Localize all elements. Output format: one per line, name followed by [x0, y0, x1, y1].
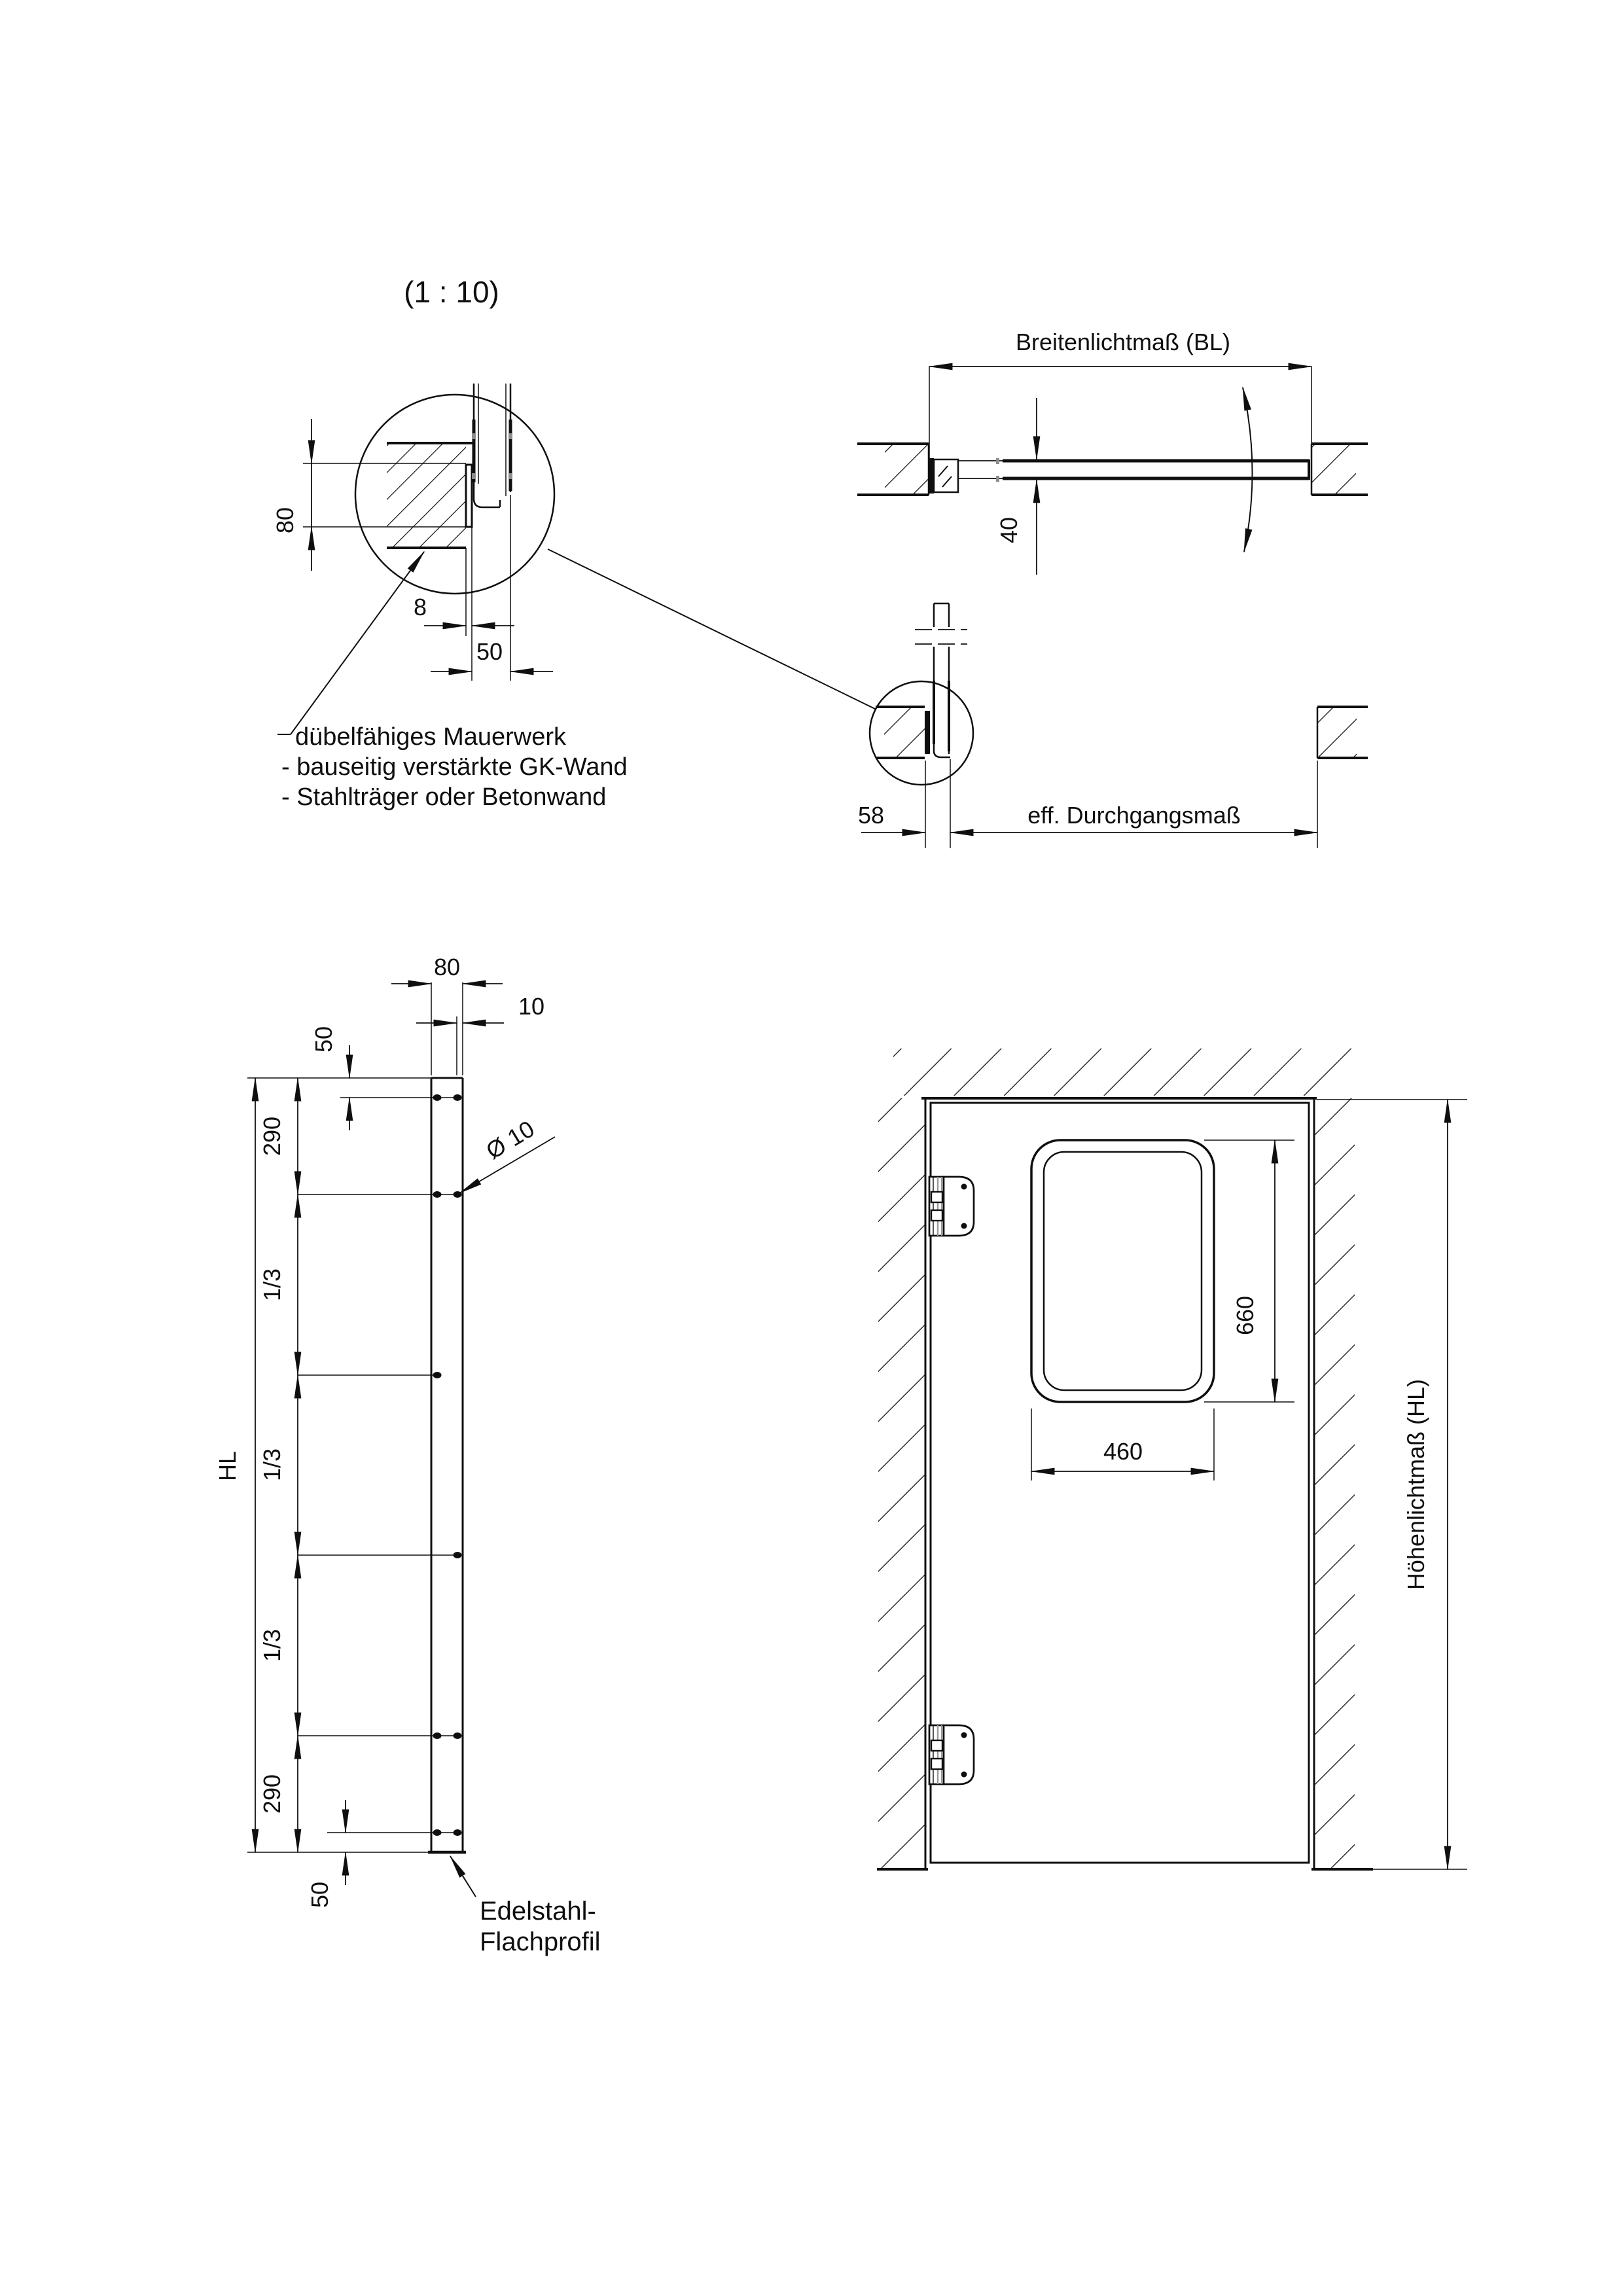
detail-view: 80 8 50 — [272, 384, 876, 734]
scale-label: (1 : 10) — [404, 275, 499, 309]
frame-plate-section — [925, 711, 930, 754]
third-dim-1: 1/3 — [259, 1268, 285, 1301]
drawing-canvas: (1 : 10) 80 8 — [0, 0, 1623, 2296]
window-outer — [1031, 1140, 1214, 1402]
bottom-segment-dim: 290 — [259, 1774, 285, 1814]
lintel-hatch — [893, 1049, 1353, 1096]
detail-height-dim: 80 — [272, 507, 298, 533]
clear-height-label: Höhenlichtmaß (HL) — [1402, 1379, 1429, 1590]
top-hole-dim: 50 — [310, 1026, 337, 1052]
top-segment-dim: 290 — [259, 1117, 285, 1156]
profile-height-label: HL — [214, 1451, 241, 1481]
note-line-2: - bauseitig verstärkte GK-Wand — [281, 753, 628, 781]
hole-offset-dim: 10 — [518, 993, 544, 1020]
hole-diameter-label: Ø 10 — [482, 1115, 539, 1164]
pivot-hinge-plan — [934, 459, 958, 492]
elevation-view: 660 460 Höhenlichtmaß (HL) — [877, 1049, 1467, 1869]
top-hinge — [929, 1177, 974, 1236]
left-wall-hatch — [878, 1098, 925, 1869]
right-wall-hatch — [1314, 1098, 1355, 1869]
section-view: 58 eff. Durchgangsmaß — [858, 603, 1368, 848]
flat-profile-plate — [466, 465, 472, 527]
bottom-hinge — [929, 1725, 974, 1784]
clear-width-dim-label: Breitenlichtmaß (BL) — [1016, 329, 1230, 355]
door-swing-arc — [1243, 387, 1253, 552]
frame-width-dim: 50 — [476, 638, 503, 665]
wall-type-notes: dübelfähiges Mauerwerk - bauseitig verst… — [281, 723, 628, 811]
passage-dim-label: eff. Durchgangsmaß — [1027, 802, 1241, 829]
hole-pattern — [433, 1094, 462, 1836]
third-dim-2: 1/3 — [259, 1448, 285, 1481]
profile-width-dim: 80 — [434, 954, 460, 980]
wall-block-hatch — [387, 443, 466, 548]
plan-view: Breitenlichtmaß (BL) 40 — [857, 329, 1368, 575]
technical-drawing-page: (1 : 10) 80 8 — [0, 0, 1623, 2296]
note-line-1: dübelfähiges Mauerwerk — [295, 723, 567, 751]
hinge-offset-dim: 58 — [858, 802, 884, 829]
window-width-dim: 460 — [1103, 1438, 1143, 1465]
material-label-line-1: Edelstahl- — [480, 1897, 596, 1926]
material-label-line-2: Flachprofil — [480, 1928, 601, 1956]
third-dim-3: 1/3 — [259, 1629, 285, 1662]
window-height-dim: 660 — [1232, 1296, 1258, 1335]
note-line-3: - Stahlträger oder Betonwand — [281, 783, 606, 811]
bottom-hole-dim: 50 — [306, 1882, 333, 1908]
leaf-thickness-dim: 40 — [995, 517, 1022, 543]
plate-thickness-dim: 8 — [414, 594, 427, 620]
profile-view: 80 10 HL 290 1/3 1/3 1/3 290 50 50 — [214, 954, 601, 1956]
